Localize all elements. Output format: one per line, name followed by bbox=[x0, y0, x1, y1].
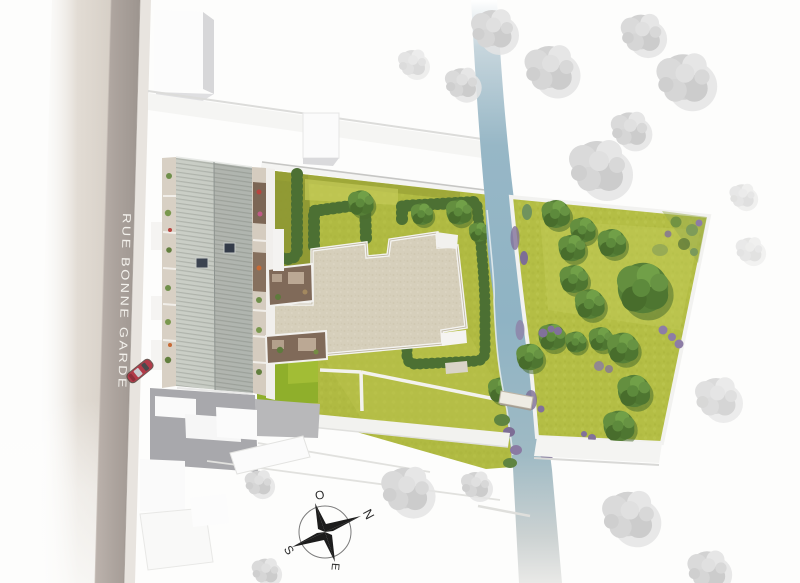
svg-text:E: E bbox=[329, 562, 342, 570]
